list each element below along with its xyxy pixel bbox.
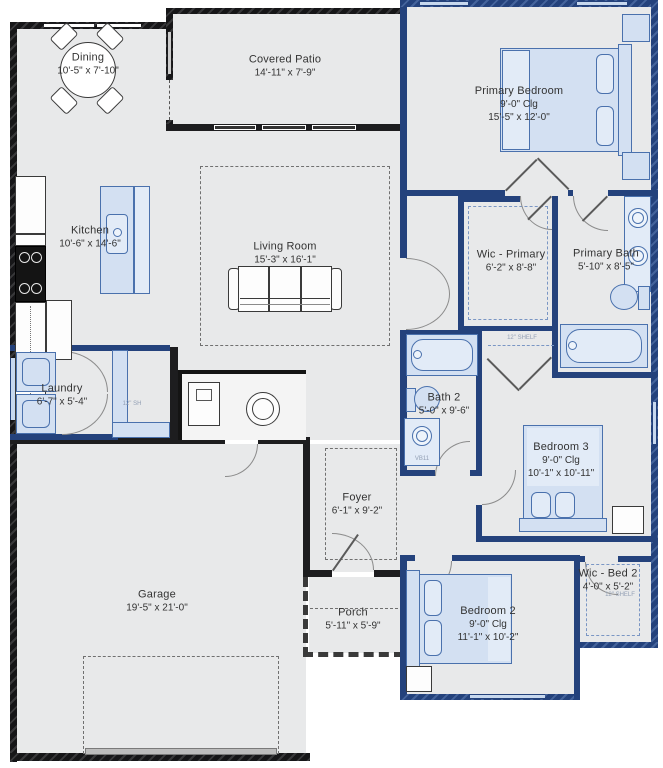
bathtub-primary-faucet: [568, 341, 577, 350]
wic-bed2-name: Wic - Bed 2: [578, 566, 637, 580]
wall-bedroom3-bottom: [476, 536, 657, 542]
bath2-name: Bath 2: [419, 390, 469, 404]
porch-wall-left: [303, 577, 308, 657]
sliding-door-2: [262, 125, 306, 130]
closet-note: 12" SH: [123, 401, 142, 407]
kitchen-cabinet: [46, 300, 72, 360]
primary-bath-name: Primary Bath: [573, 246, 639, 260]
room-label-porch: Porch 5'-11" x 5'-9": [325, 605, 380, 632]
nightstand: [622, 152, 650, 180]
nightstand: [622, 14, 650, 42]
room-label-covered-patio: Covered Patio 14'-11" x 7'-9": [249, 52, 321, 79]
room-label-living-room: Living Room 15'-3" x 16'-1": [253, 239, 316, 266]
bedroom3-name: Bedroom 3: [528, 440, 594, 454]
wall-foyer-front-left: [306, 570, 332, 577]
bathtub-primary-basin: [566, 329, 642, 363]
wall-primary-bedroom-left: [400, 7, 407, 190]
range-stove: [15, 246, 46, 302]
wic-primary-dims: 6'-2" x 8'-8": [477, 262, 546, 275]
room-label-bath2: Bath 2 5'-0" x 9'-6": [419, 390, 469, 417]
wall-mud-closet-right: [170, 347, 178, 437]
room-label-primary-bedroom: Primary Bedroom 9'-0" Clg 15'-5" x 12'-0…: [475, 84, 564, 124]
bedroom3-ceiling: 9'-0" Clg: [528, 454, 594, 467]
garage-dims: 19'-5" x 21'-0": [126, 602, 188, 615]
primary-bedroom-ceiling: 9'-0" Clg: [475, 98, 564, 111]
sliding-door-1: [214, 125, 256, 130]
room-label-dining: Dining 10'-5" x 7'-10": [57, 50, 119, 77]
toilet-primary-bowl: [610, 284, 638, 310]
sofa-back-line2: [240, 304, 330, 305]
primary-bedroom-name: Primary Bedroom: [475, 84, 564, 98]
wic-primary-name: Wic - Primary: [477, 247, 546, 261]
stool-inner-ring: [252, 398, 274, 420]
floor-plan: 12" SH VB11 Dining 10'-5" x 7'-10": [0, 0, 663, 768]
kitchen-dims: 10'-6" x 14'-6": [59, 238, 121, 251]
room-label-kitchen: Kitchen 10'-6" x 14'-6": [59, 223, 121, 250]
porch-wall-bottom: [303, 652, 404, 657]
dresser-bedroom3: [612, 506, 644, 534]
toilet-primary-tank: [638, 286, 650, 310]
window-primary-bedroom-2: [577, 1, 627, 6]
window-primary-bedroom-1: [420, 1, 468, 6]
wall-bedroom3-left-lower: [476, 505, 482, 538]
sink-primary-1: [628, 208, 648, 228]
wall-bath2-bottom-right: [470, 470, 482, 476]
room-label-foyer: Foyer 6'-1" x 9'-2": [332, 490, 382, 517]
foyer-name: Foyer: [332, 490, 382, 504]
vanity-code-note: VB11: [415, 456, 429, 462]
closet-shelf-line: [488, 345, 554, 346]
kitchen-name: Kitchen: [59, 223, 121, 237]
foyer-dims: 6'-1" x 9'-2": [332, 505, 382, 518]
room-label-laundry: Laundry 6'-7" x 5'-4": [37, 381, 87, 408]
stove-burner: [19, 283, 30, 294]
dashed-opening-line: [169, 80, 170, 120]
wall-wic-primary-left: [458, 196, 464, 330]
stove-burner: [19, 252, 30, 263]
sink-bath2: [412, 426, 432, 446]
covered-patio-name: Covered Patio: [249, 52, 321, 66]
dining-dims: 10'-5" x 7'-10": [57, 65, 119, 78]
kitchen-counter-upper: [15, 234, 46, 246]
laundry-name: Laundry: [37, 381, 87, 395]
pillow: [424, 580, 442, 616]
laundry-dims: 6'-7" x 5'-4": [37, 396, 87, 409]
garage-name: Garage: [126, 587, 188, 601]
pillow: [596, 106, 614, 146]
porch-dims: 5'-11" x 5'-9": [325, 620, 380, 633]
stove-burner: [31, 283, 42, 294]
pillow: [424, 620, 442, 656]
desk-item: [196, 389, 212, 401]
bed-bedroom3-headboard: [519, 518, 607, 532]
refrigerator: [15, 176, 46, 234]
bed-bedroom2-headboard: [406, 570, 420, 668]
desk: [188, 382, 220, 426]
wall-wic-bed2-top-right: [618, 556, 651, 562]
bath2-dims: 5'-0" x 9'-6": [419, 405, 469, 418]
bedroom2-ceiling: 9'-0" Clg: [458, 618, 519, 631]
window-patio-left: [167, 32, 172, 74]
room-label-bedroom3: Bedroom 3 9'-0" Clg 10'-1" x 10'-11": [528, 440, 594, 480]
bedroom3-dims: 10'-1" x 10'-11": [528, 467, 594, 480]
bed-primary-headboard: [618, 44, 632, 156]
wall-wing-right: [651, 0, 658, 648]
room-label-bedroom2: Bedroom 2 9'-0" Clg 11'-1" x 10'-2": [458, 604, 519, 644]
stove-burner: [31, 252, 42, 263]
room-label-primary-bath: Primary Bath 5'-10" x 8'-5": [573, 246, 639, 273]
wall-primary-bath-bottom: [552, 372, 657, 378]
wall-hall-left-upper: [400, 190, 407, 258]
pillow: [555, 492, 575, 518]
bedroom2-name: Bedroom 2: [458, 604, 519, 618]
wall-bedroom2-top-right: [452, 555, 580, 561]
mud-closet-bench-bottom: [112, 422, 170, 438]
room-label-garage: Garage 19'-5" x 21'-0": [126, 587, 188, 614]
shelf-note-primary: 12" SHELF: [507, 335, 537, 341]
wall-wic-primary-top: [458, 196, 520, 202]
shelf-note-bed2: 12" SHELF: [605, 592, 635, 598]
nightstand-bedroom2: [406, 666, 432, 692]
pillow: [531, 492, 551, 518]
porch-name: Porch: [325, 605, 380, 619]
dining-name: Dining: [57, 50, 119, 64]
sofa-back-line: [240, 298, 330, 299]
wall-patio-top: [166, 8, 404, 14]
wall-garage-right: [303, 437, 310, 577]
garage-door-dashed-outline: [83, 656, 279, 754]
stool: [246, 392, 280, 426]
covered-patio-dims: 14'-11" x 7'-9": [249, 67, 321, 80]
primary-bath-dims: 5'-10" x 8'-5": [573, 261, 639, 274]
window-bedroom2: [470, 694, 545, 699]
kitchen-island-counter: [134, 186, 150, 294]
sliding-door-3: [312, 125, 356, 130]
wall-bath2-bottom-left: [400, 470, 435, 476]
living-room-name: Living Room: [253, 239, 316, 253]
primary-bedroom-dims: 15'-5" x 12'-0": [475, 111, 564, 124]
window-bedroom3: [652, 402, 657, 444]
pillow: [596, 54, 614, 94]
bathtub-bath2-faucet: [413, 350, 422, 359]
room-label-wic-primary: Wic - Primary 6'-2" x 8'-8": [477, 247, 546, 274]
bedroom2-dims: 11'-1" x 10'-2": [458, 631, 519, 644]
living-room-dims: 15'-3" x 16'-1": [253, 254, 316, 267]
garage-door-panel: [85, 748, 277, 755]
wall-wic-bed2-bottom: [580, 642, 658, 648]
room-label-wic-bed2: Wic - Bed 2 4'-0" x 5'-2": [578, 566, 637, 593]
